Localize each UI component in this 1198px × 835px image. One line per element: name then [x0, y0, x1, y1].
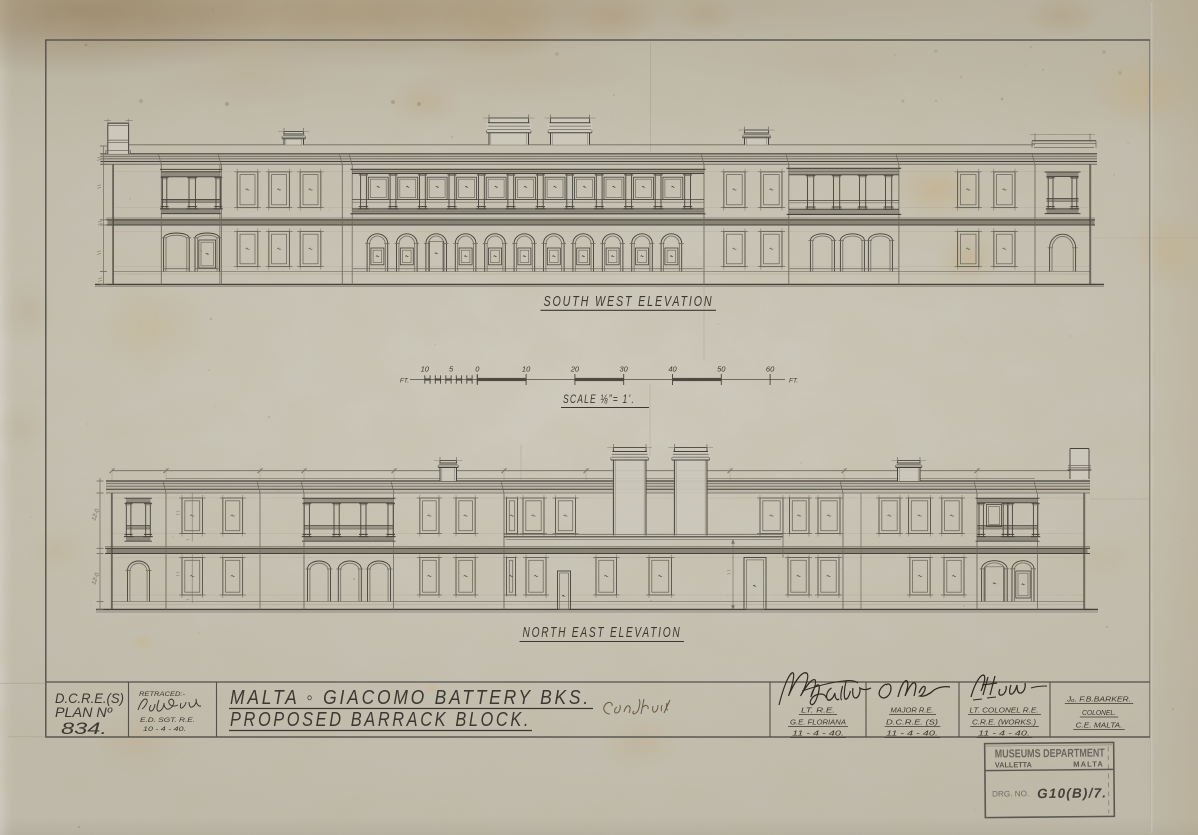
svg-text:PLAN Nº: PLAN Nº [55, 705, 113, 720]
svg-text:40: 40 [668, 365, 677, 374]
svg-text:30: 30 [620, 365, 629, 374]
svg-text:10: 10 [421, 365, 430, 374]
svg-text:G.E. FLORIANA: G.E. FLORIANA [790, 717, 846, 726]
svg-text:20: 20 [570, 365, 580, 374]
svg-text:11 - 4 - 40.: 11 - 4 - 40. [792, 728, 844, 737]
svg-text:NORTH EAST ELEVATION: NORTH EAST ELEVATION [523, 624, 682, 641]
svg-text:MALTA: MALTA [1073, 759, 1104, 768]
svg-text:C.E. MALTA.: C.E. MALTA. [1076, 720, 1123, 729]
svg-text:COLONEL.: COLONEL. [1082, 708, 1116, 717]
svg-text:Jₒ. F.B.BARKER.: Jₒ. F.B.BARKER. [1066, 694, 1131, 703]
svg-text:834.: 834. [61, 719, 107, 738]
svg-text:60: 60 [766, 365, 775, 374]
svg-text:SCALE ⅛”= 1’.: SCALE ⅛”= 1’. [563, 392, 635, 406]
svg-text:MALTA ◦ GIACOMO BATTERY BKS.: MALTA ◦ GIACOMO BATTERY BKS. [230, 687, 591, 709]
svg-text:RETRACED:-: RETRACED:- [139, 691, 186, 698]
svg-text:VALLETTA: VALLETTA [995, 760, 1033, 769]
svg-text:D.C.R.E. (S): D.C.R.E. (S) [886, 717, 939, 726]
svg-text:C.R.E. (WORKS.): C.R.E. (WORKS.) [972, 717, 1036, 726]
svg-text:MAJOR R.E.: MAJOR R.E. [891, 705, 934, 714]
svg-text:PROPOSED BARRACK BLOCK.: PROPOSED BARRACK BLOCK. [230, 709, 531, 731]
svg-text:E.D. SGT. R.E.: E.D. SGT. R.E. [140, 717, 195, 724]
svg-text:D.C.R.E.(S): D.C.R.E.(S) [55, 691, 124, 706]
svg-text:LT. COLONEL R.E.: LT. COLONEL R.E. [970, 705, 1039, 714]
svg-text:11 - 4 - 40.: 11 - 4 - 40. [886, 728, 938, 737]
svg-text:FT.: FT. [400, 378, 409, 385]
svg-text:FT.: FT. [789, 378, 798, 385]
svg-text:LT. R.E.: LT. R.E. [801, 705, 835, 714]
svg-text:MUSEUMS DEPARTMENT: MUSEUMS DEPARTMENT [995, 747, 1105, 760]
svg-text:SOUTH WEST ELEVATION: SOUTH WEST ELEVATION [544, 293, 714, 310]
svg-text:10: 10 [522, 365, 531, 374]
svg-text:11 - 4 - 40.: 11 - 4 - 40. [978, 728, 1030, 737]
svg-text:50: 50 [717, 365, 726, 374]
svg-text:DRG. NO.: DRG. NO. [992, 789, 1029, 798]
svg-text:10 - 4 - 40.: 10 - 4 - 40. [143, 726, 186, 733]
svg-text:G10(B)/7.: G10(B)/7. [1037, 785, 1107, 801]
